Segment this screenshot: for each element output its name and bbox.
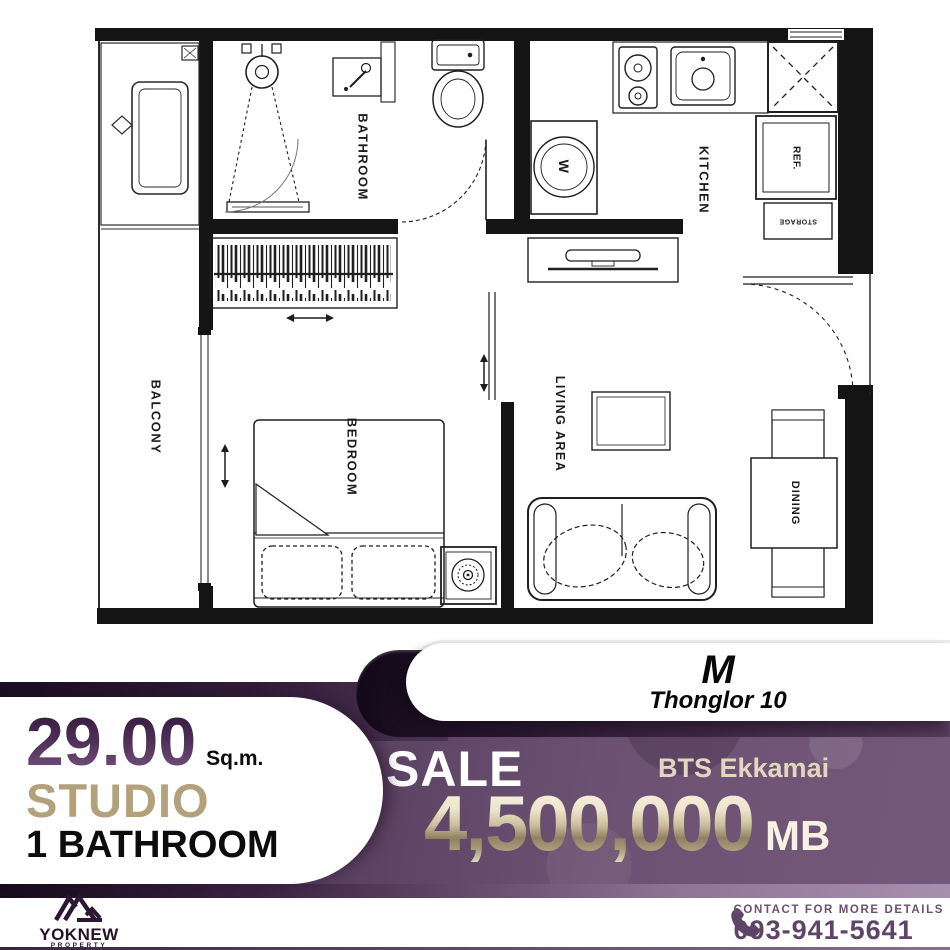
pillow-icon bbox=[352, 546, 435, 599]
price-value: 4,500,000 bbox=[424, 778, 753, 869]
entrance-door bbox=[743, 274, 870, 395]
price-row: 4,500,000 MB bbox=[424, 778, 830, 869]
property-flyer: BALCONY BATHROOM KITCHEN BEDROOM LIVING … bbox=[0, 0, 950, 950]
shower-knob-icon bbox=[242, 44, 251, 53]
vanity-icon bbox=[333, 58, 381, 96]
bathroom-count: 1 BATHROOM bbox=[26, 824, 383, 867]
project-name: M bbox=[701, 651, 734, 689]
toilet-icon bbox=[432, 40, 484, 70]
coffee-table-icon bbox=[592, 392, 670, 450]
cushion-icon bbox=[627, 526, 709, 594]
washing-machine-label: W bbox=[556, 160, 572, 175]
kitchen-sink-icon bbox=[671, 47, 735, 105]
contact-block: CONTACT FOR MORE DETAILS 093-941-5641 bbox=[734, 904, 944, 944]
area-value: 29.00 bbox=[26, 703, 196, 781]
refrigerator-label: REF. bbox=[791, 146, 802, 170]
area-unit: Sq.m. bbox=[206, 747, 263, 771]
unit-info-panel: 29.00 Sq.m. STUDIO 1 BATHROOM bbox=[0, 697, 383, 884]
contact-phone: 093-941-5641 bbox=[734, 917, 944, 944]
entrance-door-arc bbox=[743, 284, 853, 394]
kitchen-room-label: KITCHEN bbox=[697, 146, 712, 214]
brand-name: YOKNEW bbox=[24, 927, 134, 942]
shower-head-icon bbox=[246, 56, 278, 88]
bathroom-door-arc bbox=[402, 137, 486, 222]
pillow-icon bbox=[262, 546, 342, 599]
project-location: Thonglor 10 bbox=[649, 689, 786, 713]
balcony-room-label: BALCONY bbox=[149, 380, 164, 455]
area-row: 29.00 Sq.m. bbox=[26, 703, 383, 777]
bathroom-room-label: BATHROOM bbox=[356, 113, 371, 201]
balcony-elements bbox=[99, 41, 211, 608]
project-name-pill: M Thonglor 10 bbox=[406, 643, 950, 721]
living-area-room-label: LIVING AREA bbox=[553, 376, 567, 473]
yoknew-logo-icon bbox=[53, 892, 105, 922]
price-currency: MB bbox=[765, 812, 830, 860]
storage-label: STORAGE bbox=[779, 218, 817, 225]
brand-block: YOKNEW PROPERTY bbox=[24, 892, 134, 950]
blanket-fold bbox=[256, 484, 328, 535]
balcony-sliding-door bbox=[201, 334, 208, 584]
ac-unit-icon bbox=[132, 82, 188, 194]
tv-console-icon bbox=[528, 238, 678, 282]
floor-plan bbox=[0, 0, 950, 655]
bottom-accent-band bbox=[0, 884, 950, 898]
footer: YOKNEW PROPERTY CONTACT FOR MORE DETAILS… bbox=[0, 898, 950, 947]
shower-knob-icon bbox=[272, 44, 281, 53]
cushion-icon bbox=[537, 516, 634, 596]
shower-door-arc bbox=[225, 139, 298, 212]
dining-room-label: DINING bbox=[789, 481, 801, 526]
kitchen-counter bbox=[613, 42, 768, 113]
bedroom-room-label: BEDROOM bbox=[345, 418, 360, 496]
unit-type: STUDIO bbox=[26, 777, 383, 824]
